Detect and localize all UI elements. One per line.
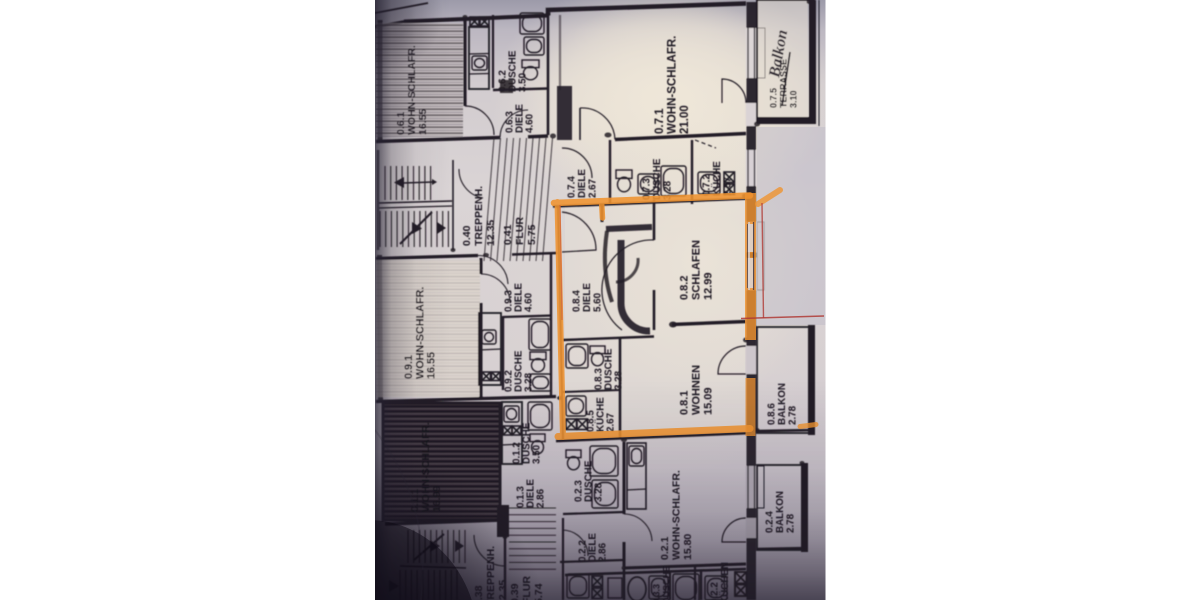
svg-text:0.7.1: 0.7.1 xyxy=(654,108,666,134)
svg-text:WOHN-SCHLAFR.: WOHN-SCHLAFR. xyxy=(666,36,678,134)
svg-text:2.67: 2.67 xyxy=(587,178,598,198)
svg-text:DIELE: DIELE xyxy=(582,283,593,312)
svg-text:3.10: 3.10 xyxy=(789,90,799,108)
svg-text:5.75: 5.75 xyxy=(526,224,538,245)
svg-text:FLUR: FLUR xyxy=(514,217,526,245)
svg-text:21.00: 21.00 xyxy=(679,105,691,134)
svg-text:4.60: 4.60 xyxy=(524,292,535,312)
svg-text:SCHLAFEN: SCHLAFEN xyxy=(690,240,702,300)
svg-text:12.99: 12.99 xyxy=(702,272,714,300)
svg-text:KÜCHE: KÜCHE xyxy=(712,161,723,196)
svg-text:4.60: 4.60 xyxy=(525,113,536,133)
svg-text:0.7.4: 0.7.4 xyxy=(566,176,577,198)
svg-text:0.7.2: 0.7.2 xyxy=(701,174,712,196)
svg-text:0.8.4: 0.8.4 xyxy=(571,290,582,312)
svg-text:0.8.2: 0.8.2 xyxy=(678,276,690,300)
svg-text:0.41: 0.41 xyxy=(502,224,514,245)
svg-text:0.7.5: 0.7.5 xyxy=(769,88,779,108)
svg-text:DIELE: DIELE xyxy=(577,169,588,198)
svg-text:0.40: 0.40 xyxy=(461,225,473,246)
svg-text:DUSCHE: DUSCHE xyxy=(652,158,663,200)
